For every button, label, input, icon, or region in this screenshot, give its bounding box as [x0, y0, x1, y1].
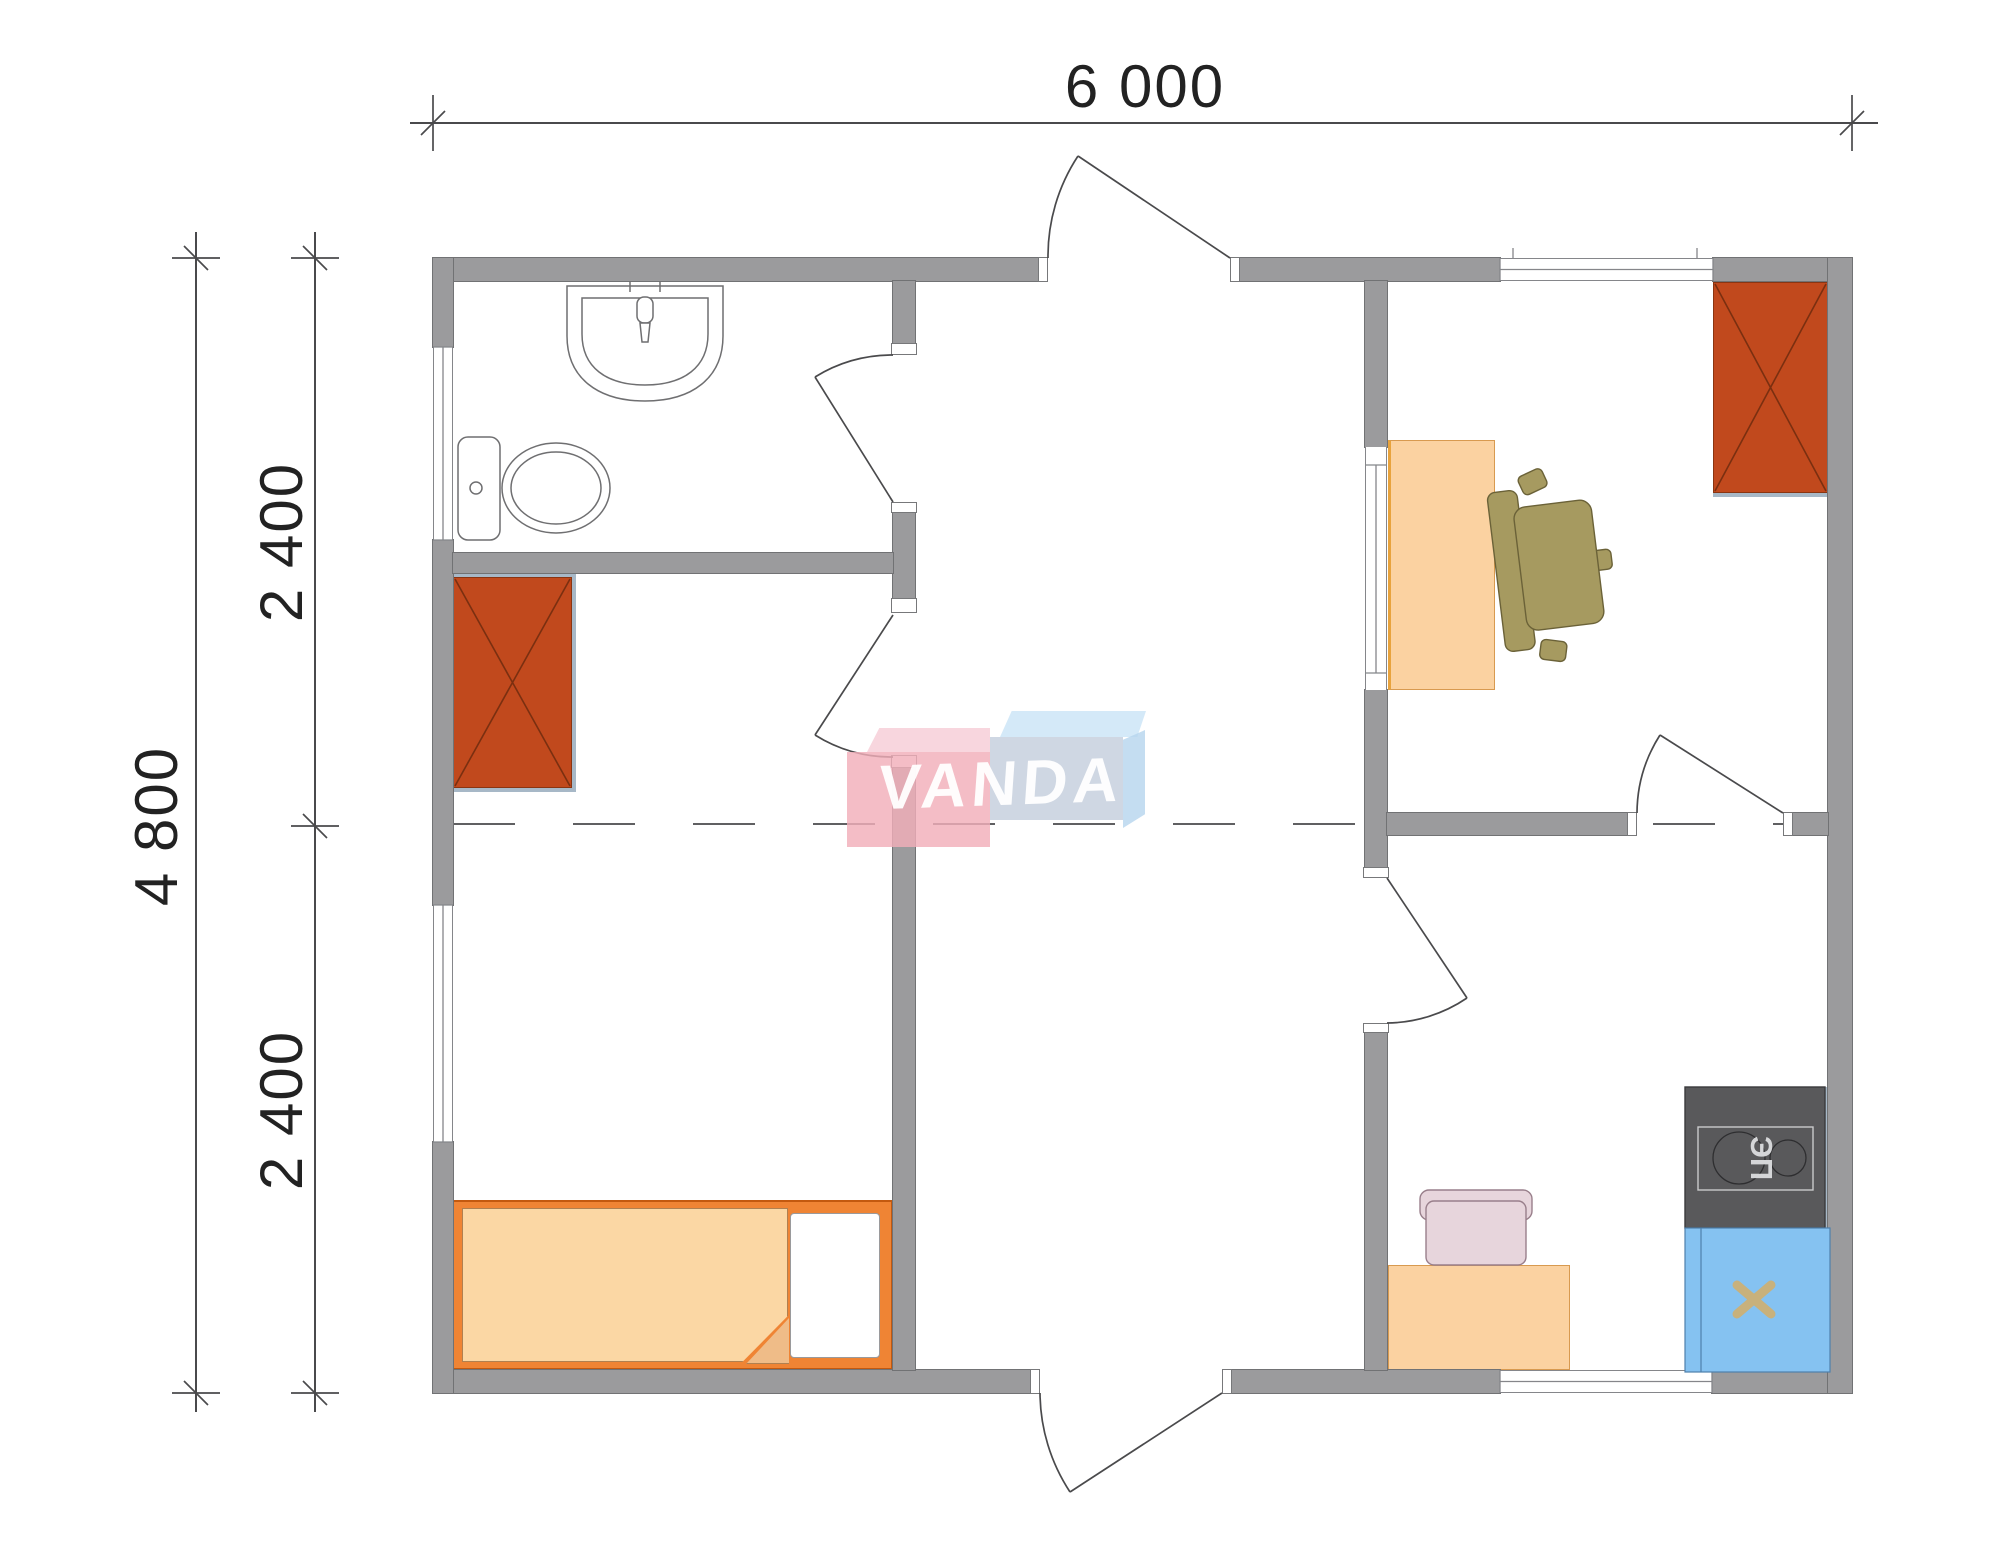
office-chair-seat: [1513, 499, 1606, 632]
office-door-arc: [1637, 735, 1660, 813]
bathroom-door-leaf: [815, 377, 893, 502]
washbasin-spout: [640, 323, 650, 342]
kitchen-door-arc: [1387, 998, 1467, 1023]
toilet-bowl: [502, 443, 610, 533]
stove-label: ЭП: [1744, 1136, 1779, 1180]
washbasin-faucet: [637, 297, 653, 323]
entry-door-top-leaf: [1078, 156, 1230, 258]
floor-plan-canvas: 6 000 4 800 2 400 2 400: [0, 0, 2000, 1563]
toilet-tank: [458, 437, 500, 540]
office-door-leaf: [1660, 735, 1783, 813]
entry-door-bottom-arc: [1040, 1393, 1070, 1492]
kitchen-chair-seat: [1426, 1201, 1526, 1265]
bathroom-door-arc: [815, 355, 893, 377]
living-door-leaf: [815, 615, 893, 735]
logo-text: VANDA: [858, 743, 1144, 825]
kitchen-door-leaf: [1387, 878, 1467, 998]
office-chair-armrest: [1539, 639, 1567, 662]
entry-door-top-arc: [1048, 156, 1078, 258]
office-chair-armrest: [1517, 467, 1549, 496]
logo-blue-top-face: [1000, 711, 1146, 737]
entry-door-bottom-leaf: [1070, 1393, 1222, 1492]
